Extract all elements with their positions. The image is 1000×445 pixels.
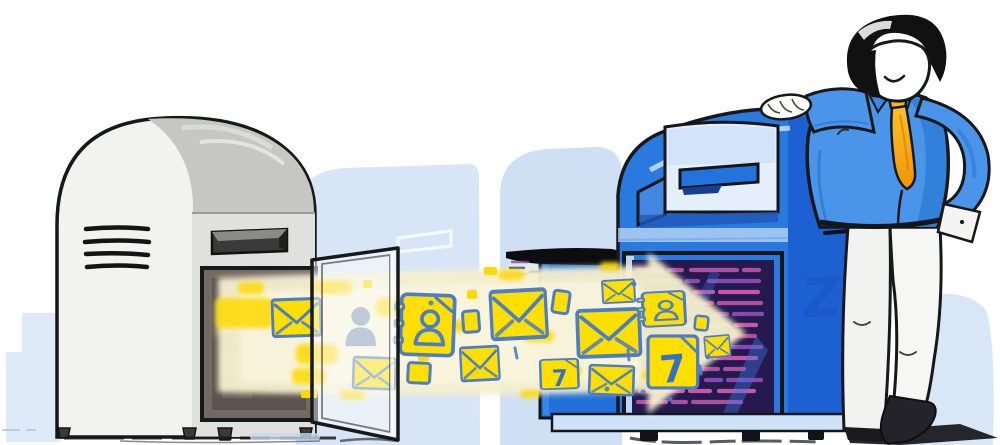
envelope-icon (602, 279, 635, 303)
shirt-cuff (938, 204, 980, 242)
address-book-icon (394, 294, 455, 356)
blue-mailbox-base (552, 414, 858, 431)
card-icon (462, 310, 479, 332)
blue-ground-shadow (630, 438, 820, 443)
background-blob-left (6, 313, 60, 442)
envelope-icon (577, 309, 641, 357)
calendar-day: 7 (551, 366, 568, 393)
mail-stream: 7 7 (216, 252, 746, 414)
card-icon (552, 290, 571, 314)
card-icon (407, 362, 430, 383)
envelope-icon (490, 289, 547, 339)
envelope-icon (589, 365, 634, 395)
ground-smudge (250, 433, 320, 440)
gray-mailbox-door (312, 248, 398, 441)
watermark-letter: Z (797, 264, 845, 331)
man-legs (843, 227, 941, 444)
ground-scribble (120, 441, 320, 443)
man-head (847, 15, 947, 101)
man-far-leg (843, 227, 891, 431)
blue-mailbox-slot (680, 164, 758, 188)
address-book-icon (637, 291, 686, 327)
illustration-canvas: Z (0, 0, 1000, 445)
card-icon (694, 315, 708, 330)
gray-mailbox-slot (212, 229, 287, 254)
far-foot (844, 427, 884, 442)
mail-migration-illustration: Z (0, 0, 1000, 445)
calendar-day: 7 (658, 346, 688, 392)
envelope-icon (704, 335, 731, 358)
envelope-icon (460, 346, 500, 381)
